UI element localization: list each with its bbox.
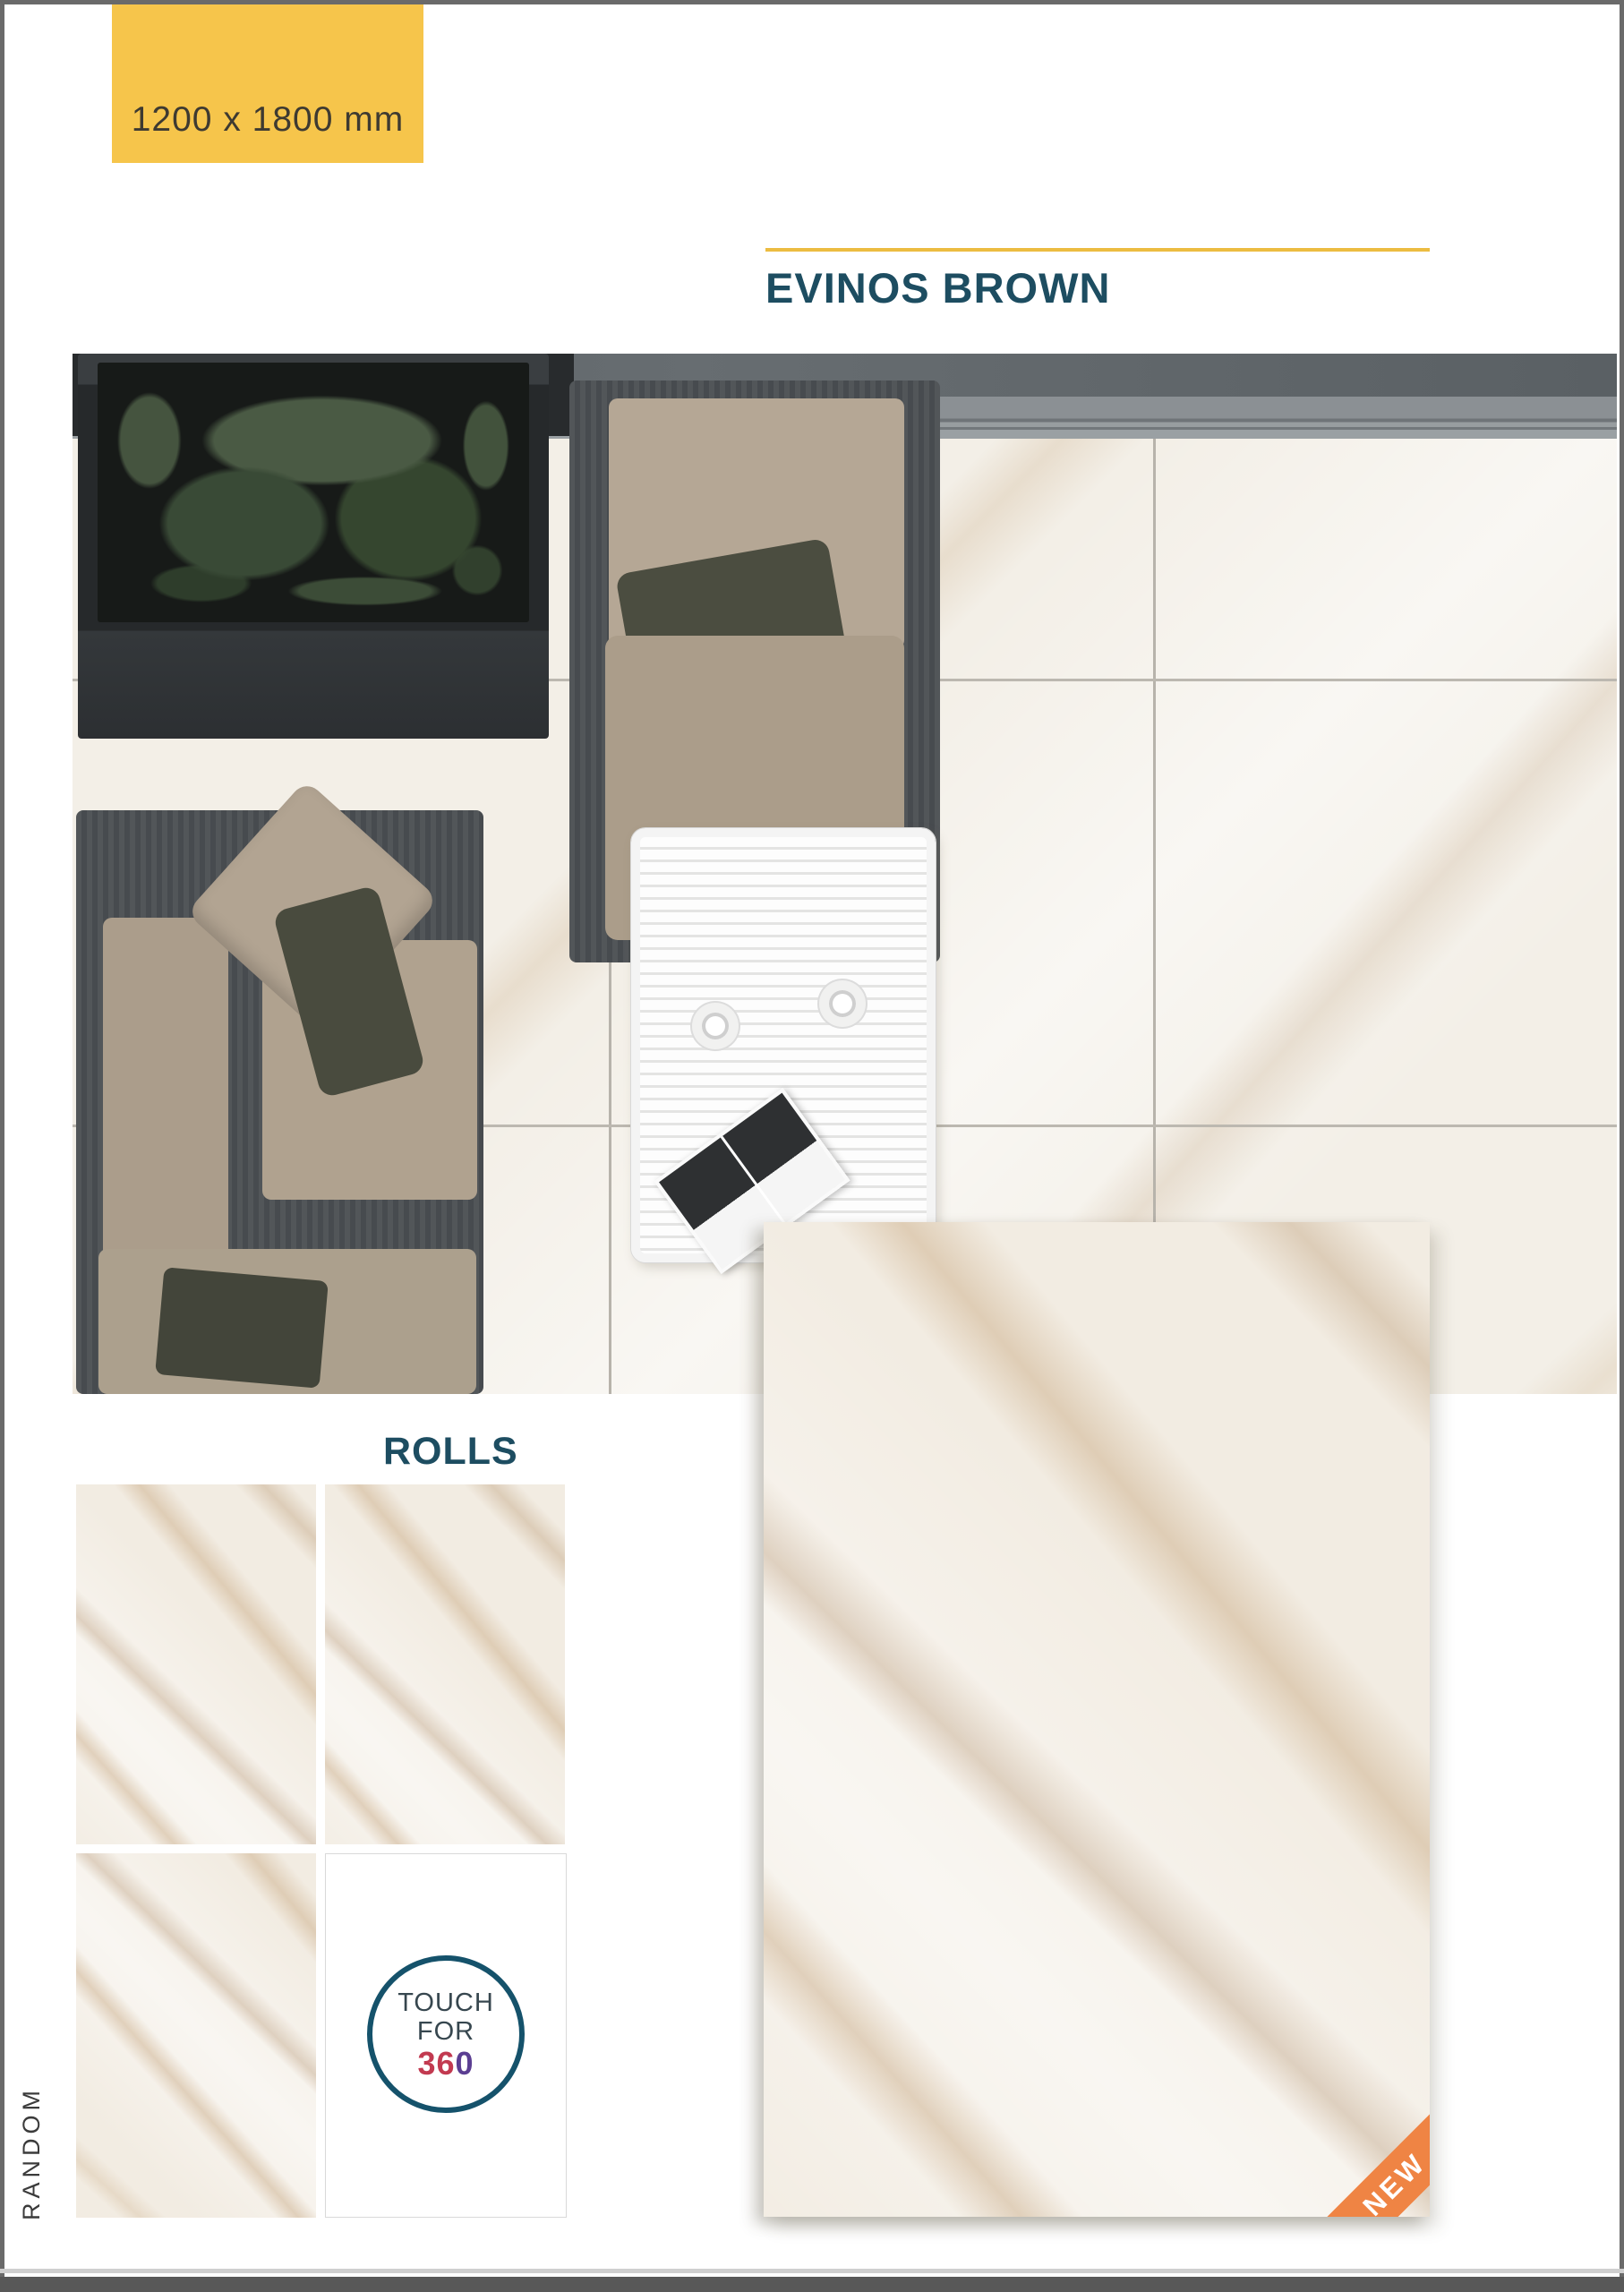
page-border-left <box>0 0 4 2292</box>
size-badge-label: 1200 x 1800 mm <box>132 100 405 163</box>
new-ribbon: NEW <box>1288 2078 1430 2217</box>
touch-360-zero-icon: 0 <box>456 2045 474 2082</box>
touch-line2: FOR <box>417 2017 474 2046</box>
accent-rule <box>765 248 1430 252</box>
touch-360-circle-icon[interactable]: TOUCH FOR 360 <box>367 1955 525 2113</box>
tile-swatch <box>76 1853 316 2218</box>
rolls-title: ROLLS <box>383 1430 518 1474</box>
sofa <box>76 810 483 1394</box>
planter-plants <box>98 363 529 622</box>
tile-swatch <box>76 1484 316 1844</box>
sofa-olive-throw <box>155 1267 329 1389</box>
product-title: EVINOS BROWN <box>765 263 1110 312</box>
coffee-table <box>631 828 936 1262</box>
touch-360-card: TOUCH FOR 360 <box>325 1853 567 2218</box>
page-border-bottom-light-line <box>0 2269 1624 2273</box>
random-vertical-label: RANDOM <box>18 2086 46 2220</box>
size-badge: 1200 x 1800 mm <box>112 4 423 163</box>
page-border-bottom <box>0 2277 1624 2292</box>
page-border-right <box>1620 0 1624 2292</box>
catalog-page: 1200 x 1800 mm EVINOS BROWN <box>0 0 1624 2292</box>
big-tile-sample: NEW <box>764 1222 1430 2217</box>
planter-box <box>78 354 549 739</box>
new-ribbon-label: NEW <box>1356 2146 1430 2217</box>
cup <box>692 1003 739 1049</box>
touch-360-value: 360 <box>417 2047 474 2081</box>
touch-360-digits: 36 <box>417 2045 455 2082</box>
sofa-back-cushion <box>103 918 228 1294</box>
cup <box>819 980 866 1027</box>
touch-line1: TOUCH <box>397 1988 494 2017</box>
tile-swatch <box>325 1484 565 1844</box>
